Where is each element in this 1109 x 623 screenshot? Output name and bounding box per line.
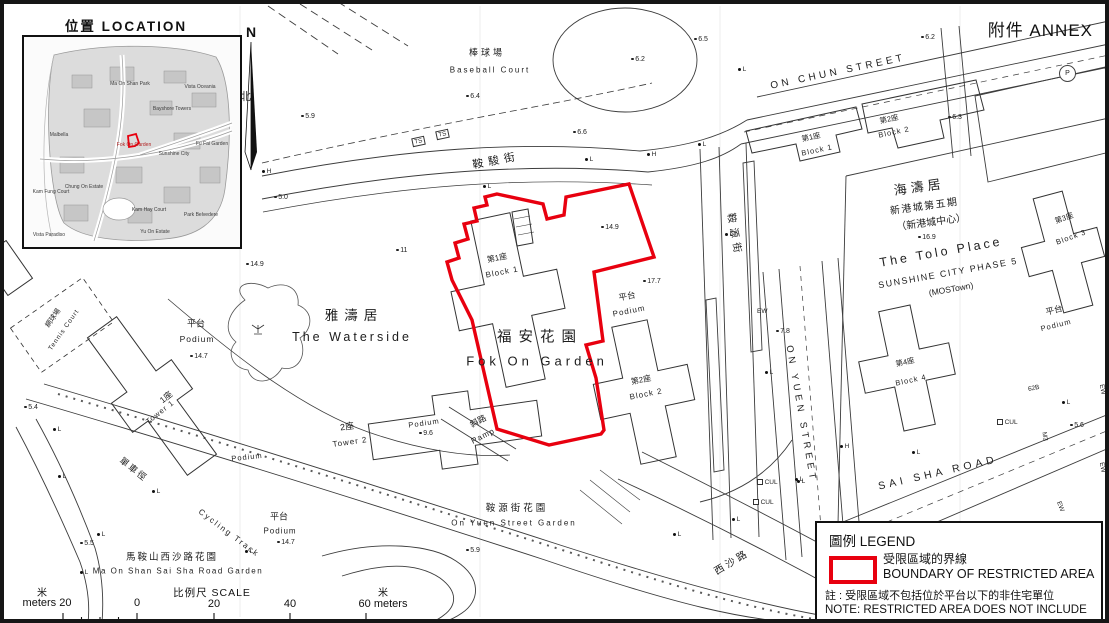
north-arrow (245, 42, 257, 170)
scale-tick-0: 0 (134, 597, 140, 609)
inset-label: Park Belvedere (184, 212, 218, 218)
scale-tick-40: 40 (284, 598, 296, 610)
spot-height: 16.9 (918, 234, 936, 241)
mosssr-garden-en: Ma On Shan Sai Sha Road Garden (93, 567, 263, 576)
inset-label: Vista Oceania (184, 84, 215, 90)
ew-marker: EW (757, 308, 767, 315)
spot-height: 11 (396, 247, 407, 254)
baseball-court-zh: 棒球場 (469, 46, 505, 59)
inset-label: Kam Hay Court (132, 207, 166, 213)
l-marker: L (585, 156, 593, 163)
inset-label: Fu Fai Garden (196, 141, 228, 147)
l-marker: L (53, 426, 61, 433)
inset-label: Ma On Shan Park (110, 81, 150, 87)
podium-sw-en: Podium (263, 527, 296, 536)
ws-tower2-zh: 2座 (339, 419, 355, 434)
l-marker: L (795, 476, 803, 483)
inset-label: Chung On Estate (65, 184, 103, 190)
location-inset-map: Ma On Shan ParkVista OceaniaBayshore Tow… (22, 35, 242, 249)
inset-label: Vista Paradiso (33, 232, 65, 238)
m3-marker: M3 (1040, 431, 1048, 441)
legend-note-en-1: NOTE: RESTRICTED AREA DOES NOT INCLUDE (825, 604, 1087, 616)
scale-tick-20: 20 (208, 598, 220, 610)
l-marker: L (80, 569, 88, 576)
spot-height: 6.4 (466, 93, 480, 100)
l-marker: L (97, 531, 105, 538)
spot-height: 14.9 (246, 261, 264, 268)
legend-panel: 圖例 LEGEND 受限區域的界線 BOUNDARY OF RESTRICTED… (815, 521, 1103, 623)
spot-height: 6.3 (948, 114, 962, 121)
spot-height: 7.8 (776, 328, 790, 335)
spot-height: 9.6 (419, 430, 433, 437)
l-marker: L (58, 473, 66, 480)
l-marker: L (673, 531, 681, 538)
baseball-court-en: Baseball Court (450, 66, 530, 75)
scale-bar (63, 613, 366, 622)
spot-height: 6.6 (573, 129, 587, 136)
tower-footprint (859, 305, 956, 431)
inset-label: Yu On Estate (140, 229, 169, 235)
spot-height: 6.5 (694, 36, 708, 43)
waterside-en: The Waterside (292, 330, 412, 344)
cul-marker: CUL (753, 499, 774, 506)
tower-footprint (1021, 191, 1104, 313)
l-marker: L (152, 488, 160, 495)
l-marker: L (732, 516, 740, 523)
spot-height: 14.9 (601, 224, 619, 231)
spot-height: 14.7 (277, 539, 295, 546)
scale-left-label: meters 20 (23, 597, 72, 609)
scale-right-label: 60 meters (359, 598, 408, 610)
spot-height: 5.9 (466, 547, 480, 554)
legend-boundary-zh: 受限區域的界線 (883, 550, 967, 567)
spot-height: 5.0 (274, 194, 288, 201)
spot-height: 5.6 (1070, 422, 1084, 429)
h-marker: H (647, 151, 656, 158)
waterside-zh: 雅濤居 (325, 304, 384, 324)
on-yuen-garden-zh: 鞍源街花園 (486, 500, 549, 514)
spot-height: 17.7 (643, 278, 661, 285)
location-title: 位置 LOCATION (65, 15, 187, 35)
legend-title: 圖例 LEGEND (829, 530, 915, 550)
on-yuen-garden-en: On Yuen Street Garden (451, 519, 576, 528)
annex-title: 附件 ANNEX (988, 16, 1093, 41)
spot-height: 14.7 (190, 353, 208, 360)
inset-label: Malbella (50, 132, 69, 138)
podium-sw-zh: 平台 (270, 510, 288, 523)
restricted-area-map-annex: 棒球場Baseball CourtON CHUN STREET鞍駿街福安花園Fo… (0, 0, 1109, 623)
l-marker: L (698, 141, 706, 148)
spot-height: 5.9 (301, 113, 315, 120)
inset-label: Fok On Garden (117, 142, 151, 148)
l-marker: L (483, 183, 491, 190)
podium-west-zh: 平台 (187, 317, 205, 330)
legend-note-zh: 註 : 受限區域不包括位於平台以下的非住宅單位 (825, 587, 1054, 603)
north-letter: N (246, 24, 256, 40)
tower-footprint (368, 391, 541, 469)
podium-west-en: Podium (180, 334, 215, 344)
inset-label: Bayshore Towers (153, 106, 191, 112)
boundary-swatch (829, 556, 877, 584)
spot-height: 5.4 (24, 404, 38, 411)
fok-on-garden-zh: 福安花園 (497, 326, 583, 347)
l-marker: L (912, 449, 920, 456)
spot-height: 6.2 (921, 34, 935, 41)
legend-boundary-en: BOUNDARY OF RESTRICTED AREA (883, 567, 1094, 581)
spot-height: 6.2 (631, 56, 645, 63)
inset-label: Sunshine City (159, 151, 190, 157)
h-marker: H (840, 443, 849, 450)
l-marker: L (738, 66, 746, 73)
h-marker: H (262, 168, 271, 175)
p-marker: P (1059, 65, 1076, 82)
cul-marker: CUL (757, 479, 778, 486)
spot-height: 5.5 (80, 540, 94, 547)
scale-zh-right: 米 (378, 584, 388, 599)
fok-on-garden-en: Fok On Garden (466, 354, 608, 369)
l-marker: L (1062, 399, 1070, 406)
mosssr-garden-zh: 馬鞍山西沙路花園 (126, 549, 218, 563)
l-marker: L (765, 369, 773, 376)
cul-marker: CUL (997, 419, 1018, 426)
